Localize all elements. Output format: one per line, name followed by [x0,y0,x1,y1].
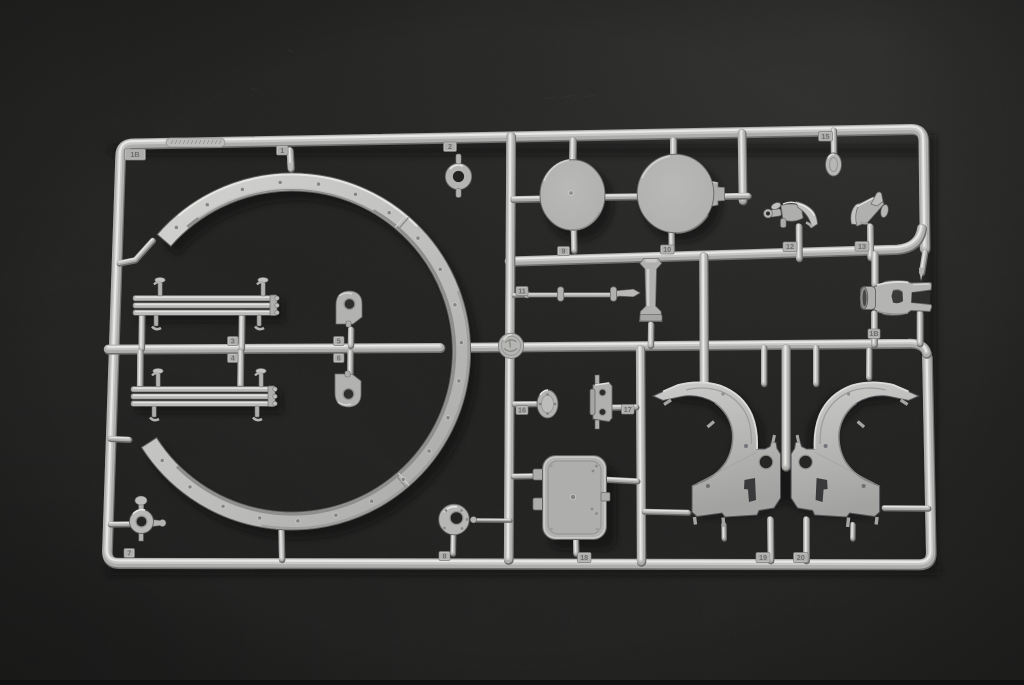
svg-text:1: 1 [280,146,284,155]
svg-text:7: 7 [127,549,131,558]
svg-text:20: 20 [797,553,805,562]
svg-text:4: 4 [231,354,235,363]
svg-text:1B: 1B [130,150,139,159]
svg-text:19: 19 [759,553,767,562]
svg-text:11: 11 [518,287,526,296]
svg-text:5: 5 [337,337,341,346]
svg-text:13: 13 [858,242,866,251]
svg-text:2: 2 [448,142,452,151]
svg-text:12: 12 [786,242,794,251]
svg-text:8: 8 [443,552,447,561]
svg-text:6: 6 [337,354,341,363]
svg-text:17: 17 [624,405,632,414]
svg-text:16: 16 [518,406,526,415]
svg-text:1B: 1B [869,329,878,338]
svg-text:15: 15 [822,132,830,141]
svg-text:9: 9 [562,247,566,256]
svg-text:3: 3 [231,337,235,346]
svg-text:10: 10 [663,245,671,254]
svg-text:18: 18 [580,553,588,562]
